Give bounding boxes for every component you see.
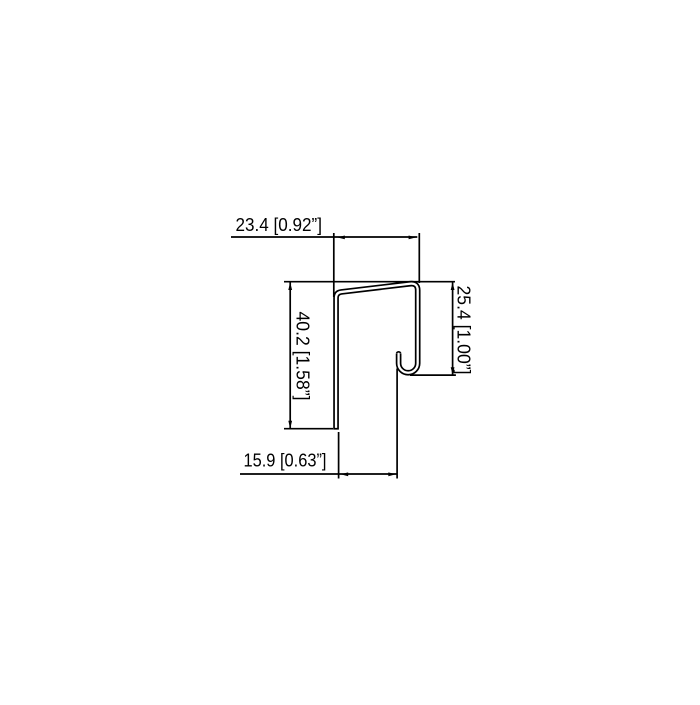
svg-text:40.2 [1.58”]: 40.2 [1.58”] [293, 312, 313, 401]
svg-text:25.4 [1.00”]: 25.4 [1.00”] [454, 286, 474, 375]
svg-text:15.9 [0.63”]: 15.9 [0.63”] [244, 451, 327, 471]
svg-text:23.4 [0.92”]: 23.4 [0.92”] [236, 215, 323, 235]
